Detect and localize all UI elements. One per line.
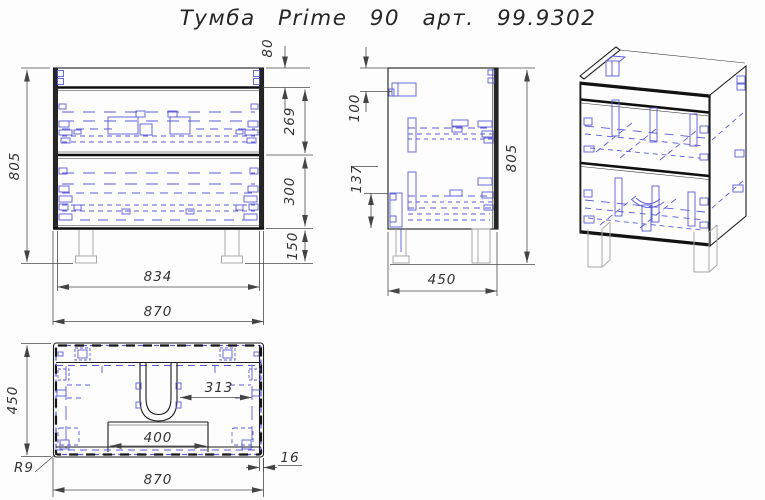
side-view: 100 137 805 450 [347,47,535,296]
dim-front-legs: 150 [285,232,301,261]
drawing-sheet: Тумба Prime 90 арт. 99.9302 [0,0,765,500]
technical-drawing-canvas: Тумба Prime 90 арт. 99.9302 [0,0,765,500]
front-drawer2-hidden-lines [59,168,258,220]
dim-plan-width: 870 [144,472,173,488]
dim-side-height: 805 [504,144,520,173]
dim-plan-corner-radius: R9 [14,460,34,476]
dim-front-top-rail: 80 [260,38,276,57]
dim-plan-depth: 450 [5,386,21,415]
dim-front-drawer-top: 269 [282,107,298,136]
dim-side-depth: 450 [428,272,457,288]
side-hidden-lines [389,70,494,252]
drawing-title: Тумба Prime 90 арт. 99.9302 [180,6,597,31]
dim-front-height: 805 [7,152,23,181]
plan-view: 450 R9 313 400 16 870 [5,343,302,497]
front-drawer1-hidden-lines [59,104,258,143]
dim-plan-drain-shelf: 400 [144,430,173,446]
dim-plan-drain-offset: 313 [205,380,234,396]
iso-hidden-lines [584,76,745,231]
plan-rail-fittings [58,348,259,373]
dim-side-bracket-from-top: 100 [347,94,363,123]
dim-front-width: 870 [144,304,173,320]
dim-plan-wall-thickness: 16 [280,450,299,466]
side-legs [393,229,490,263]
iso-view [580,47,746,272]
dim-side-bracket-height: 137 [349,165,365,194]
dim-front-inner-width: 834 [144,269,173,285]
dim-front-drawer-bottom: 300 [282,177,298,206]
front-view: 805 80 269 300 150 834 870 [7,38,313,325]
iso-wall-bracket [606,56,625,76]
front-legs [76,230,243,263]
front-rail-fittings [58,71,260,85]
